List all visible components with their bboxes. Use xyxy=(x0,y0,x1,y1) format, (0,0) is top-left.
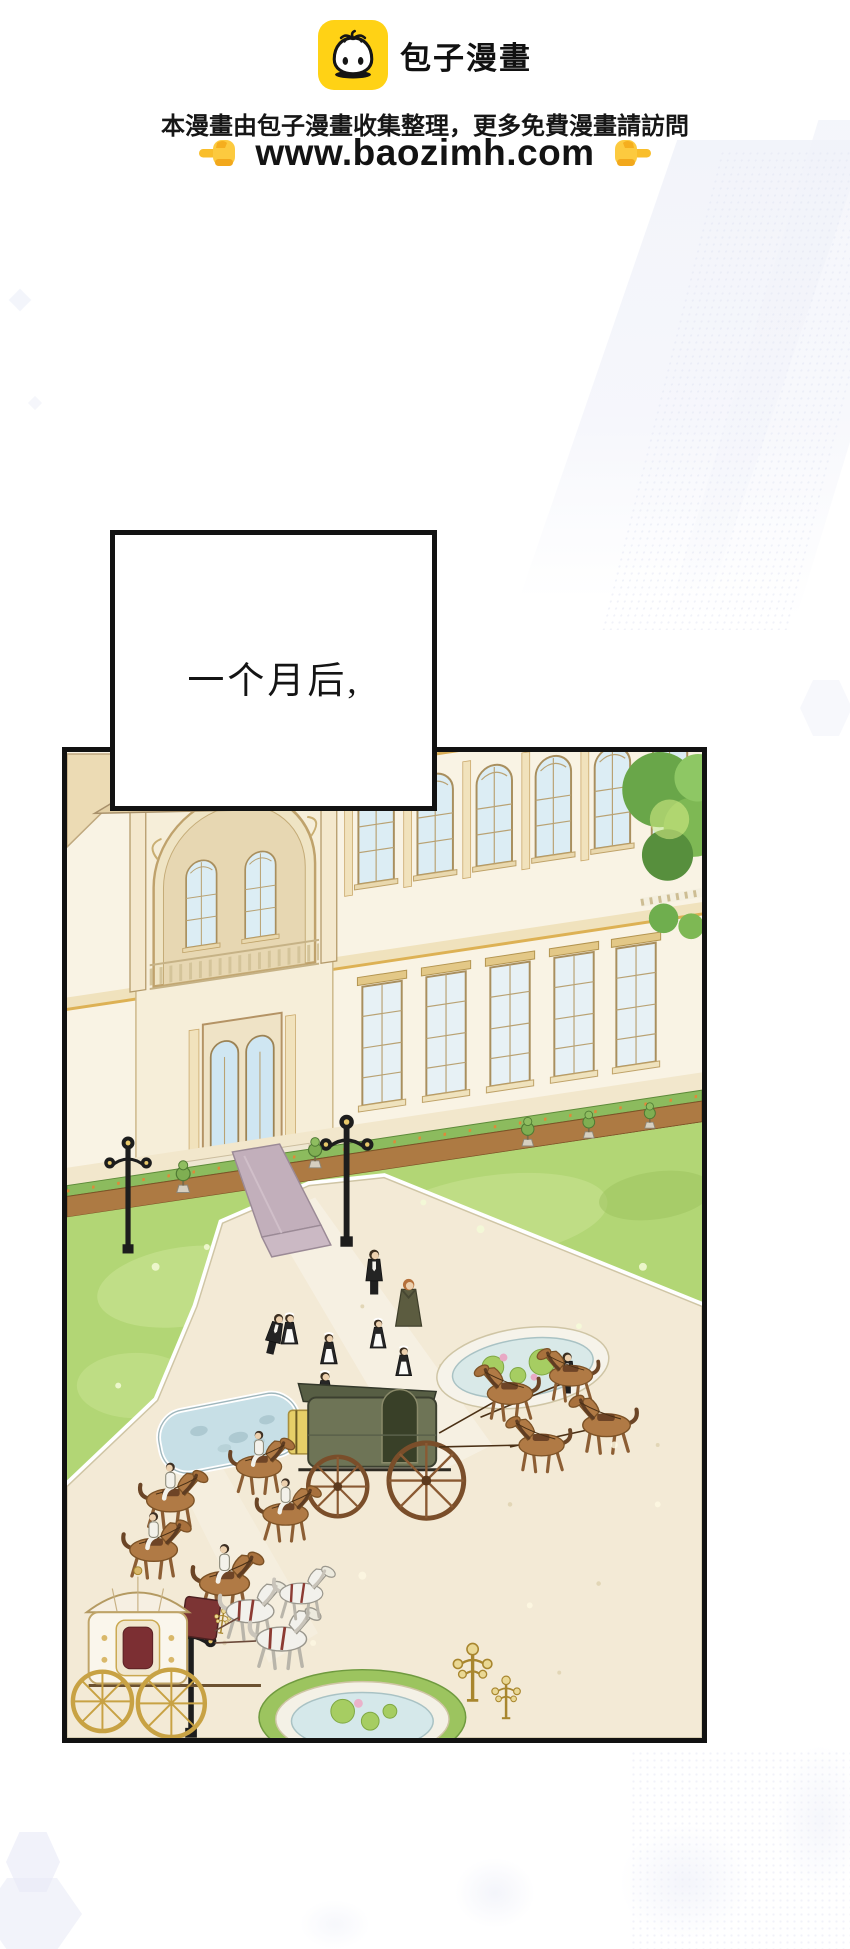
topiary-urn xyxy=(176,1161,190,1193)
bg-streak xyxy=(666,120,850,620)
bg-hexagon xyxy=(800,680,850,736)
topiary-urn xyxy=(583,1111,595,1138)
topiary-urn xyxy=(644,1103,655,1128)
bg-speckle xyxy=(600,150,850,630)
topiary-urn xyxy=(522,1117,534,1146)
bg-diamond xyxy=(9,289,32,312)
caption-box: 一个月后, xyxy=(110,530,437,811)
bg-speckle xyxy=(630,1750,850,1949)
site-url: www.baozimh.com xyxy=(255,132,594,174)
bg-blob xyxy=(300,1900,370,1949)
baozi-bun-icon xyxy=(318,20,388,90)
bg-hexagon xyxy=(0,1878,82,1949)
bg-hexagon xyxy=(6,1832,60,1892)
comic-panel xyxy=(62,747,707,1743)
url-line: www.baozimh.com xyxy=(0,132,850,174)
pointing-right-hand-icon xyxy=(199,137,241,169)
pointing-left-hand-icon xyxy=(609,137,651,169)
caption-text: 一个月后, xyxy=(187,650,359,704)
site-title: 包子漫畫 xyxy=(400,33,532,78)
bg-streak xyxy=(519,140,850,600)
palace-courtyard-illustration xyxy=(67,752,702,1738)
site-banner: 包子漫畫 xyxy=(0,20,850,90)
comic-page: 包子漫畫 本漫畫由包子漫畫收集整理，更多免費漫畫請訪問 www.baozimh.… xyxy=(0,0,850,1949)
bg-blob xyxy=(455,1858,535,1928)
bg-blob xyxy=(620,1825,750,1940)
topiary-urn xyxy=(309,1138,322,1168)
bg-blob xyxy=(775,1745,850,1895)
bg-diamond xyxy=(28,396,42,410)
palace-entrance xyxy=(127,752,340,1190)
